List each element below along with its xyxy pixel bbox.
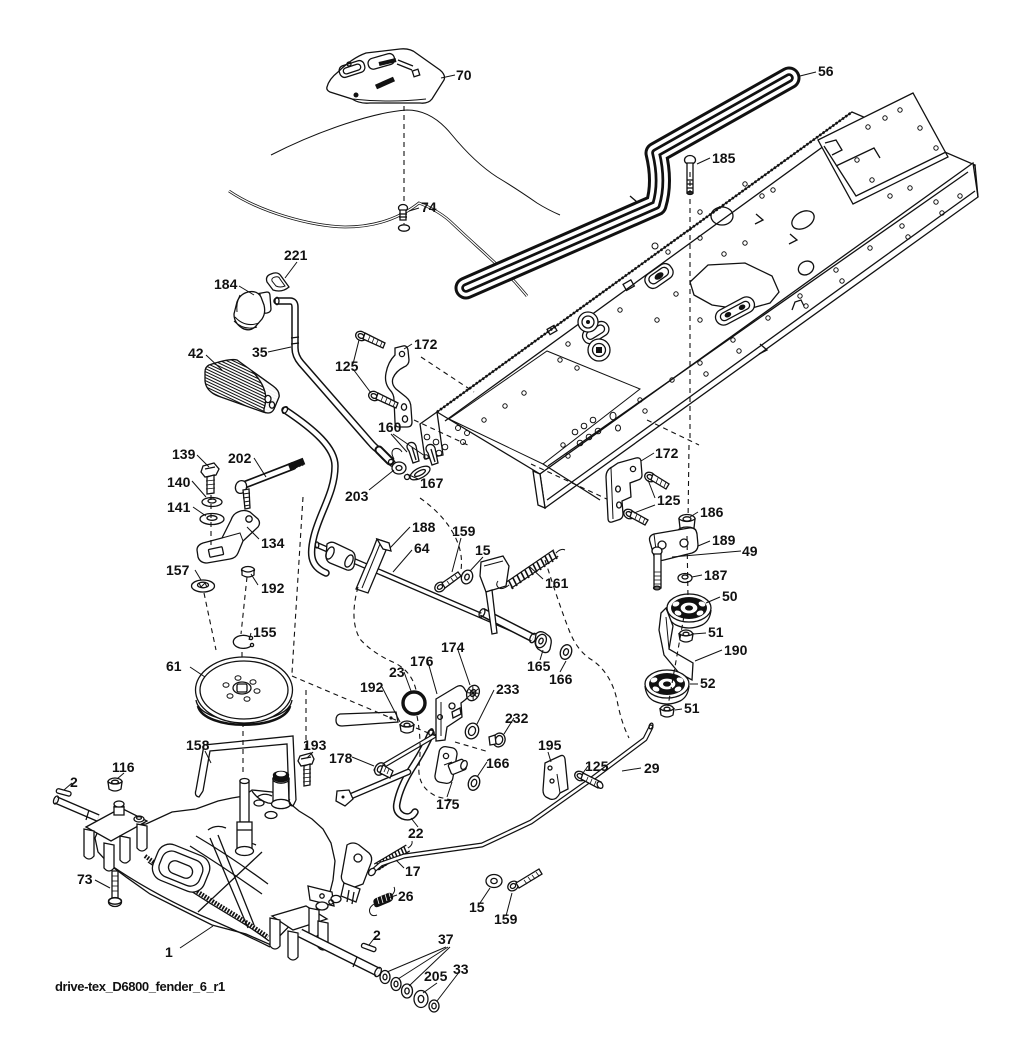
svg-text:61: 61 xyxy=(166,658,182,674)
svg-text:232: 232 xyxy=(505,710,529,726)
svg-text:202: 202 xyxy=(228,450,252,466)
svg-text:185: 185 xyxy=(712,150,736,166)
svg-text:140: 140 xyxy=(167,474,191,490)
svg-text:159: 159 xyxy=(452,523,476,539)
svg-text:184: 184 xyxy=(214,276,238,292)
svg-text:125: 125 xyxy=(585,758,609,774)
svg-text:70: 70 xyxy=(456,67,472,83)
svg-text:178: 178 xyxy=(329,750,353,766)
svg-text:155: 155 xyxy=(253,624,277,640)
svg-text:174: 174 xyxy=(441,639,465,655)
svg-text:15: 15 xyxy=(475,542,491,558)
svg-text:203: 203 xyxy=(345,488,369,504)
svg-text:116: 116 xyxy=(112,759,135,775)
svg-text:192: 192 xyxy=(261,580,285,596)
svg-text:190: 190 xyxy=(724,642,748,658)
svg-text:157: 157 xyxy=(166,562,190,578)
svg-text:158: 158 xyxy=(186,737,210,753)
svg-text:175: 175 xyxy=(436,796,460,812)
svg-text:172: 172 xyxy=(655,445,679,461)
svg-text:159: 159 xyxy=(494,911,518,927)
svg-text:73: 73 xyxy=(77,871,93,887)
svg-text:187: 187 xyxy=(704,567,728,583)
svg-text:22: 22 xyxy=(408,825,424,841)
svg-text:167: 167 xyxy=(420,475,444,491)
svg-text:141: 141 xyxy=(167,499,191,515)
svg-text:52: 52 xyxy=(700,675,716,691)
svg-text:50: 50 xyxy=(722,588,738,604)
svg-text:160: 160 xyxy=(378,419,402,435)
svg-text:186: 186 xyxy=(700,504,724,520)
svg-text:125: 125 xyxy=(335,358,359,374)
svg-text:26: 26 xyxy=(398,888,414,904)
svg-text:49: 49 xyxy=(742,543,758,559)
svg-text:33: 33 xyxy=(453,961,469,977)
svg-text:139: 139 xyxy=(172,446,196,462)
svg-text:176: 176 xyxy=(410,653,434,669)
svg-text:205: 205 xyxy=(424,968,448,984)
svg-text:drive-tex_D6800_fender_6_r1: drive-tex_D6800_fender_6_r1 xyxy=(55,979,225,994)
svg-text:193: 193 xyxy=(303,737,327,753)
svg-text:125: 125 xyxy=(657,492,681,508)
svg-text:2: 2 xyxy=(373,927,381,943)
svg-text:37: 37 xyxy=(438,931,454,947)
svg-text:64: 64 xyxy=(414,540,430,556)
svg-text:166: 166 xyxy=(486,755,510,771)
svg-text:35: 35 xyxy=(252,344,268,360)
svg-text:51: 51 xyxy=(708,624,724,640)
svg-text:189: 189 xyxy=(712,532,736,548)
svg-text:17: 17 xyxy=(405,863,421,879)
svg-text:195: 195 xyxy=(538,737,562,753)
svg-text:161: 161 xyxy=(545,575,569,591)
svg-text:15: 15 xyxy=(469,899,485,915)
svg-text:188: 188 xyxy=(412,519,436,535)
svg-text:165: 165 xyxy=(527,658,551,674)
svg-text:221: 221 xyxy=(284,247,308,263)
svg-text:2: 2 xyxy=(70,774,78,790)
svg-text:134: 134 xyxy=(261,535,285,551)
svg-text:166: 166 xyxy=(549,671,573,687)
svg-text:29: 29 xyxy=(644,760,660,776)
svg-text:23: 23 xyxy=(389,664,405,680)
svg-text:1: 1 xyxy=(165,944,173,960)
svg-text:172: 172 xyxy=(414,336,438,352)
svg-text:56: 56 xyxy=(818,63,834,79)
svg-text:74: 74 xyxy=(421,199,437,215)
svg-text:42: 42 xyxy=(188,345,204,361)
svg-text:233: 233 xyxy=(496,681,520,697)
svg-text:51: 51 xyxy=(684,700,700,716)
svg-text:192: 192 xyxy=(360,679,384,695)
